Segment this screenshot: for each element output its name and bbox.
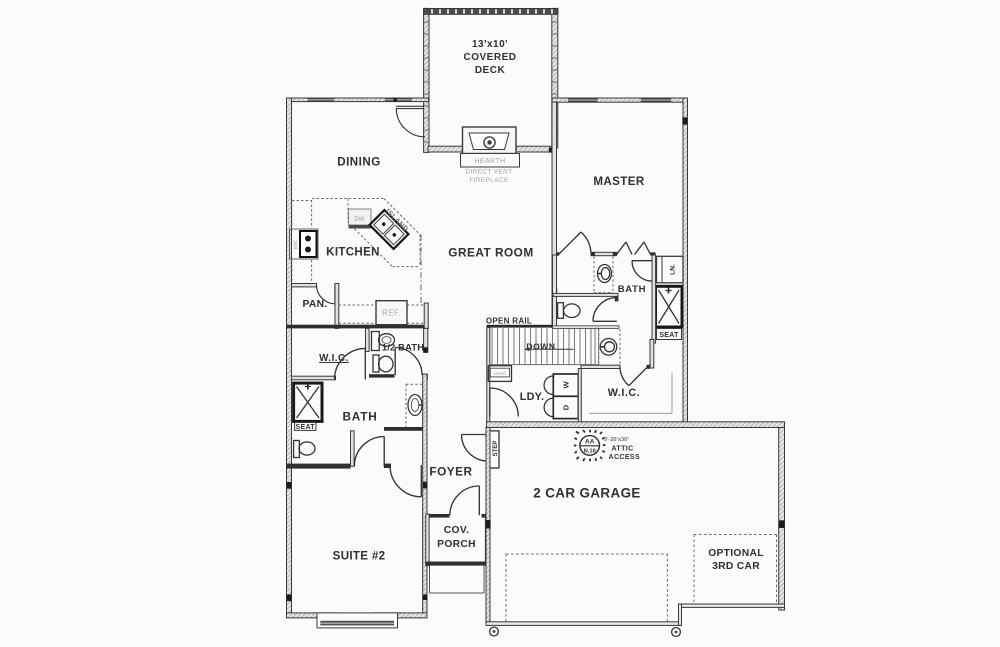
svg-text:W: W [562,381,571,389]
svg-text:AA: AA [585,439,595,446]
svg-text:1/2 BATH: 1/2 BATH [382,343,424,353]
svg-text:DINING: DINING [337,156,381,169]
svg-text:COVERED: COVERED [464,52,517,63]
svg-text:SEAT: SEAT [296,424,316,431]
svg-text:DW.: DW. [354,217,366,223]
svg-text:SUITE #2: SUITE #2 [333,550,386,563]
svg-text:ATTIC: ATTIC [612,446,634,453]
svg-text:3RD CAR: 3RD CAR [712,561,760,572]
svg-text:OPTIONAL: OPTIONAL [708,548,764,559]
svg-text:N.10: N.10 [584,449,596,455]
svg-text:HVAC: HVAC [494,371,508,377]
svg-text:13'x10': 13'x10' [472,39,508,50]
svg-text:FIREPLACE: FIREPLACE [469,177,509,184]
svg-text:FOYER: FOYER [429,465,472,479]
svg-text:2 CAR GARAGE: 2 CAR GARAGE [533,486,640,501]
svg-text:GREAT ROOM: GREAT ROOM [448,246,533,260]
svg-text:D: D [562,404,571,410]
svg-text:W.I.C.: W.I.C. [319,353,349,364]
svg-text:ACCESS: ACCESS [609,454,641,461]
svg-text:BATH: BATH [342,410,377,424]
svg-text:W.I.C.: W.I.C. [608,387,640,399]
svg-text:STEP: STEP [493,441,499,457]
svg-text:COV.: COV. [444,525,469,536]
svg-text:PORCH: PORCH [437,539,476,550]
svg-text:DECK: DECK [475,65,506,76]
svg-text:DOWN: DOWN [526,342,555,352]
svg-text:LN.: LN. [670,264,677,275]
svg-text:9'-30'x30': 9'-30'x30' [604,437,629,443]
svg-text:BATH: BATH [618,284,646,295]
svg-text:PAN.: PAN. [302,299,327,310]
svg-text:HEARTH: HEARTH [474,158,505,165]
svg-text:SEAT: SEAT [659,332,679,339]
svg-text:MIC.: MIC. [294,238,300,249]
svg-text:KITCHEN: KITCHEN [326,246,380,259]
svg-text:OPEN RAIL: OPEN RAIL [486,317,532,326]
svg-text:REF.: REF. [382,309,401,318]
svg-text:DIRECT VENT: DIRECT VENT [465,169,512,176]
svg-text:LDY.: LDY. [520,391,545,403]
svg-text:MASTER: MASTER [593,175,645,188]
